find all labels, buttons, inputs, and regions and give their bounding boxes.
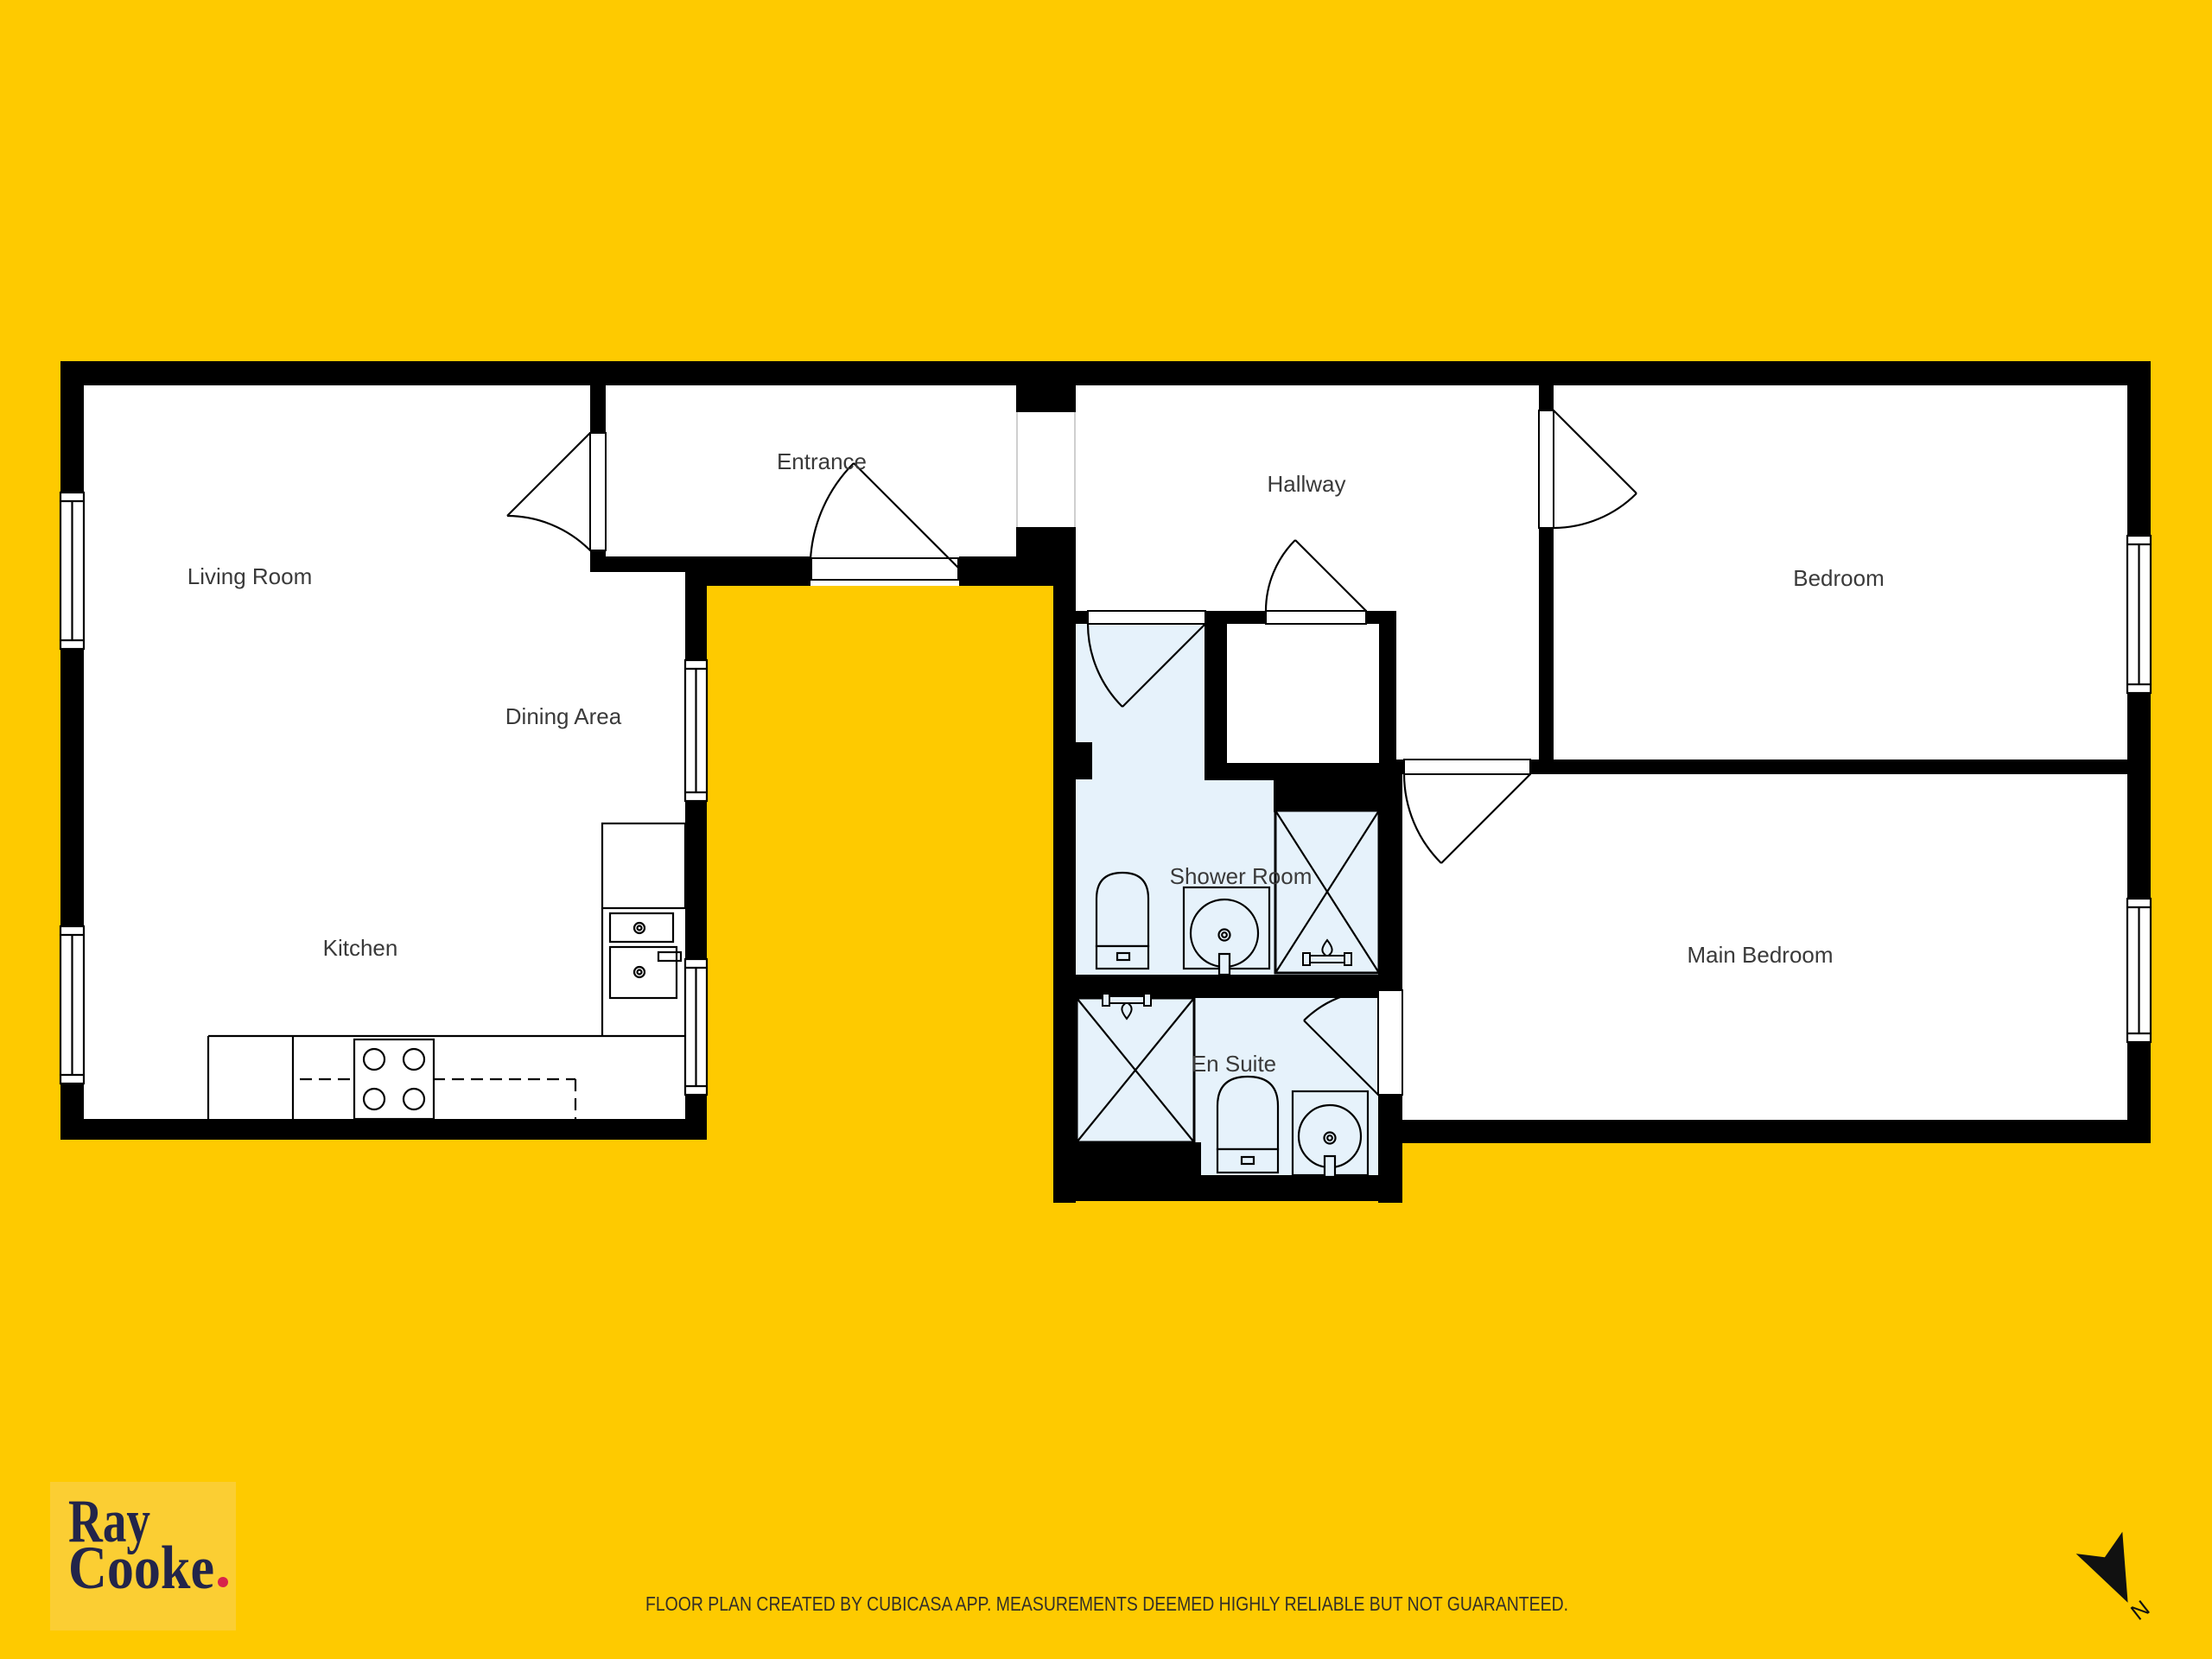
svg-text:Kitchen: Kitchen [323,935,398,961]
svg-text:Dining Area: Dining Area [505,703,622,729]
svg-text:En Suite: En Suite [1192,1051,1276,1077]
svg-text:Living Room: Living Room [188,563,313,589]
svg-text:Shower Room: Shower Room [1170,863,1313,889]
svg-text:FLOOR PLAN CREATED BY CUBICASA: FLOOR PLAN CREATED BY CUBICASA APP. MEAS… [645,1592,1568,1615]
svg-text:Entrance: Entrance [777,448,867,474]
svg-text:Hallway: Hallway [1267,471,1345,497]
svg-text:Bedroom: Bedroom [1793,565,1885,591]
svg-text:Main Bedroom: Main Bedroom [1687,942,1833,968]
svg-text:Cooke: Cooke [68,1535,214,1602]
